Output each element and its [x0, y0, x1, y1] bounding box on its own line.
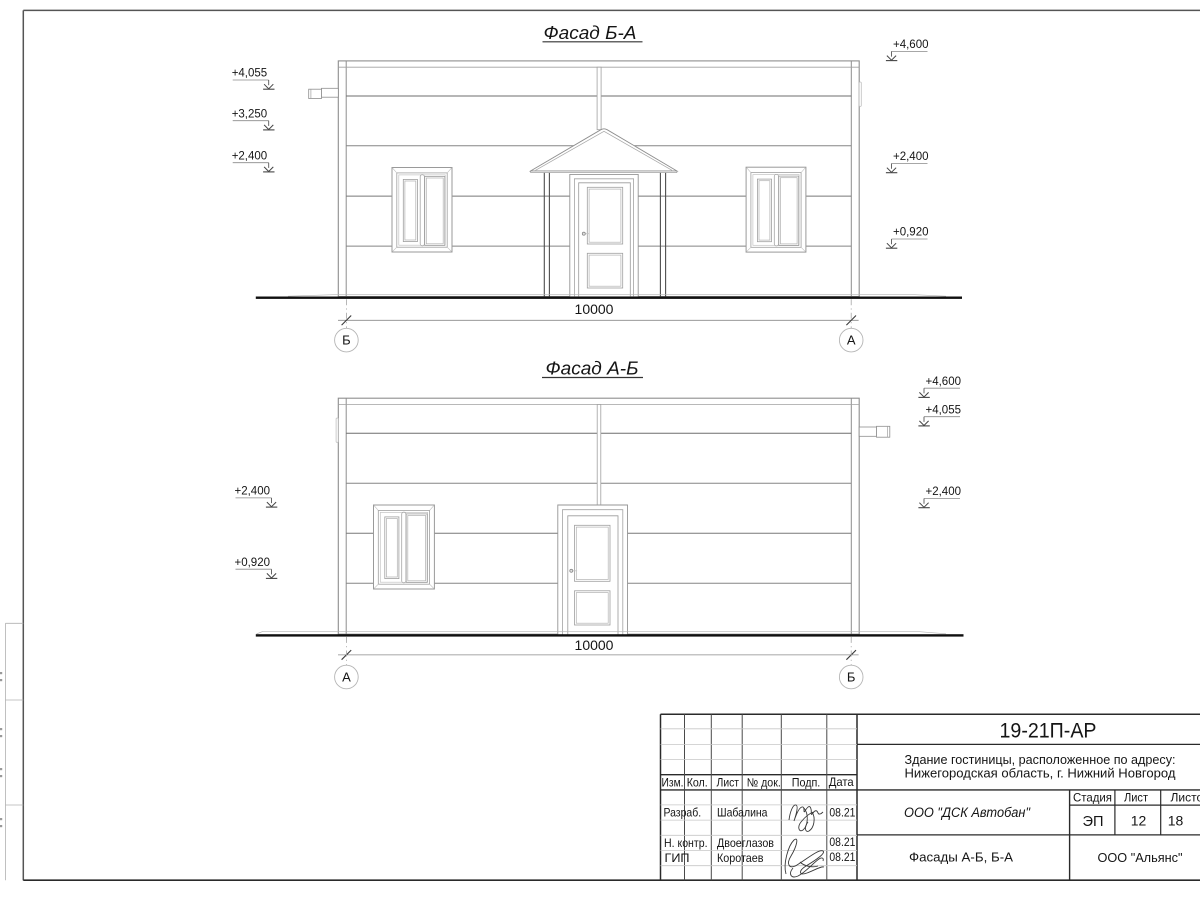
svg-text:+2,400: +2,400: [893, 151, 929, 163]
svg-text:+4,055: +4,055: [232, 68, 268, 80]
svg-text:08.21: 08.21: [829, 835, 855, 849]
svg-text:12: 12: [1131, 812, 1147, 828]
svg-text:Стадия: Стадия: [1073, 790, 1112, 804]
svg-text:№ док.: № док.: [747, 775, 781, 789]
svg-text:ООО "ДСК Автобан": ООО "ДСК Автобан": [904, 805, 1031, 820]
svg-text:ГИП: ГИП: [665, 851, 690, 865]
svg-text:10000: 10000: [575, 301, 614, 317]
svg-text:+0,920: +0,920: [235, 557, 271, 569]
svg-text:08.21: 08.21: [829, 805, 855, 819]
svg-text:+2,400: +2,400: [232, 150, 268, 162]
svg-text:10000: 10000: [575, 637, 614, 653]
svg-text:+0,920: +0,920: [893, 227, 929, 239]
svg-text:Листов: Листов: [1171, 790, 1200, 804]
svg-text:ЭП: ЭП: [1083, 813, 1104, 830]
svg-text:ООО "Альянс": ООО "Альянс": [1098, 850, 1183, 865]
svg-text:Дата: Дата: [829, 775, 854, 789]
svg-text:Б: Б: [847, 670, 856, 685]
svg-text:Кол.: Кол.: [687, 775, 708, 789]
svg-text:Б: Б: [342, 333, 351, 348]
svg-text:Фасады А-Б, Б-А: Фасады А-Б, Б-А: [909, 850, 1013, 865]
svg-text:Двоеглазов: Двоеглазов: [717, 836, 774, 850]
svg-text:А: А: [342, 670, 351, 685]
svg-text:Фасад А-Б: Фасад А-Б: [546, 357, 639, 378]
svg-text:Коротаев: Коротаев: [717, 851, 764, 865]
svg-text:+2,400: +2,400: [235, 486, 271, 498]
svg-text:Изм.: Изм.: [662, 775, 684, 789]
svg-text:Н. контр.: Н. контр.: [664, 836, 708, 850]
svg-text:Фасад Б-А: Фасад Б-А: [544, 22, 637, 43]
svg-text:08.21: 08.21: [829, 850, 855, 864]
svg-text:Лист: Лист: [717, 775, 740, 789]
svg-text:Разраб.: Разраб.: [664, 806, 702, 820]
svg-text:19-21П-АР: 19-21П-АР: [1000, 719, 1097, 742]
svg-text:Лист: Лист: [1124, 790, 1148, 804]
svg-text:Нижегородская область, г. Нижн: Нижегородская область, г. Нижний Новгоро…: [905, 766, 1176, 781]
svg-text:18: 18: [1168, 812, 1184, 828]
svg-text:+3,250: +3,250: [232, 108, 268, 120]
svg-text:Подп.: Подп.: [792, 775, 821, 789]
svg-text:+4,055: +4,055: [926, 404, 962, 416]
svg-text:+2,400: +2,400: [926, 486, 962, 498]
svg-text:Шабалина: Шабалина: [717, 806, 768, 820]
svg-text:+4,600: +4,600: [893, 39, 929, 51]
svg-text:А: А: [847, 333, 856, 348]
svg-text:+4,600: +4,600: [926, 376, 962, 388]
